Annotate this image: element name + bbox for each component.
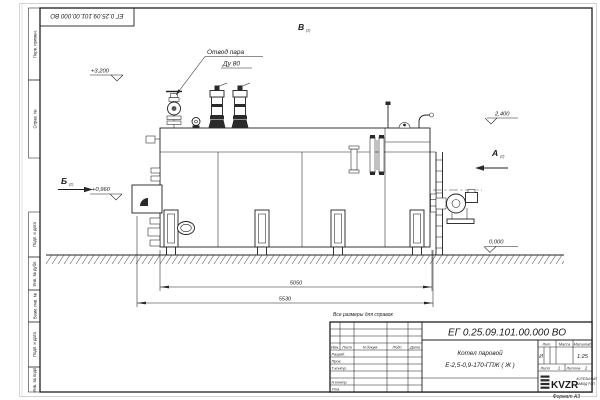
scanned-drawing-sheet: Перв. примен. Справ. № Подп. и дата Инв.… [0, 0, 600, 400]
top-fitting [192, 118, 200, 129]
margin-label-inv-podl: Инв. № подл. [32, 366, 37, 392]
row-nkontr: Н.контр. [332, 380, 348, 384]
product-name-line1: Котел паровой [457, 349, 503, 357]
svg-text:Б: Б [61, 176, 67, 186]
doc-number: ЕГ 0.25.09.101.00.000 ВО [448, 328, 566, 339]
margin-label-vzam-inv: Взам. инв. № [33, 293, 38, 319]
svg-text:Ду 80: Ду 80 [222, 61, 240, 68]
margin-label-podp-data-2: Подп. и дата [32, 331, 37, 356]
row-razrab: Разраб. [332, 352, 346, 356]
scale-header: Масштаб [574, 342, 593, 346]
svg-text:В: В [298, 22, 304, 32]
title-block: Все размеры для справок Изм. Лист N доку… [330, 312, 597, 392]
row-tkontr: Т.контр. [332, 366, 347, 370]
drawing-canvas: Перв. примен. Справ. № Подп. и дата Инв.… [0, 0, 600, 400]
company-line1: КОТЕЛЬНЫЙ [577, 377, 598, 381]
sheets-label: Листов [566, 366, 581, 370]
svg-text:Отвод пара: Отвод пара [207, 48, 245, 56]
margin-label-podp-data-1: Подп. и дата [32, 221, 37, 246]
col-izm: Изм. [331, 345, 339, 349]
margin-label-inv-dubl: Инв. № дубл. [32, 261, 37, 287]
lit-value: И [539, 354, 543, 360]
sheet-value: 1 [558, 365, 560, 370]
logo-text: KVZR [551, 380, 579, 391]
dim-5050-value: 5050 [290, 281, 303, 287]
dim-5530-value: 5530 [279, 297, 292, 303]
format-label: Формат А3 [553, 394, 581, 400]
margin-label-sprav: Справ. № [33, 109, 38, 129]
svg-text:0,000: 0,000 [489, 240, 504, 246]
corner-doc-number: ЕГ 0.25.09.101.00.000 ВО [50, 12, 123, 19]
boiler-casing [160, 128, 430, 247]
mass-header: Масса [559, 342, 570, 346]
margin-label-perv-primen: Перв. примен. [33, 30, 38, 58]
company-line2: ЗАВОД РЭП [577, 382, 596, 386]
product-name-line2: Е-2,5-0,9-170-ГПЖ ( Ж ) [445, 362, 515, 369]
col-doc: N докум. [363, 345, 378, 349]
col-sign: Подп. [392, 345, 402, 349]
col-date: Дата [409, 345, 420, 349]
reference-note: Все размеры для справок [333, 312, 394, 318]
svg-text:+0,960: +0,960 [92, 187, 111, 193]
scale-value: 1:25 [577, 354, 589, 360]
col-list: Лист [341, 345, 352, 349]
row-utv: Утв. [332, 387, 341, 391]
svg-text:2,400: 2,400 [494, 112, 510, 118]
svg-text:(2): (2) [500, 155, 504, 159]
manhole [178, 222, 195, 235]
lit-header: Лит. [542, 342, 552, 346]
sheet-label: Лист [540, 366, 551, 370]
ground-line [46, 255, 564, 264]
row-prov: Пров. [332, 359, 342, 363]
water-gauge-column [370, 135, 384, 175]
svg-text:+3,200: +3,200 [91, 69, 110, 75]
svg-text:А: А [491, 148, 498, 158]
svg-text:(2): (2) [306, 29, 310, 33]
svg-text:(2): (2) [69, 183, 73, 187]
